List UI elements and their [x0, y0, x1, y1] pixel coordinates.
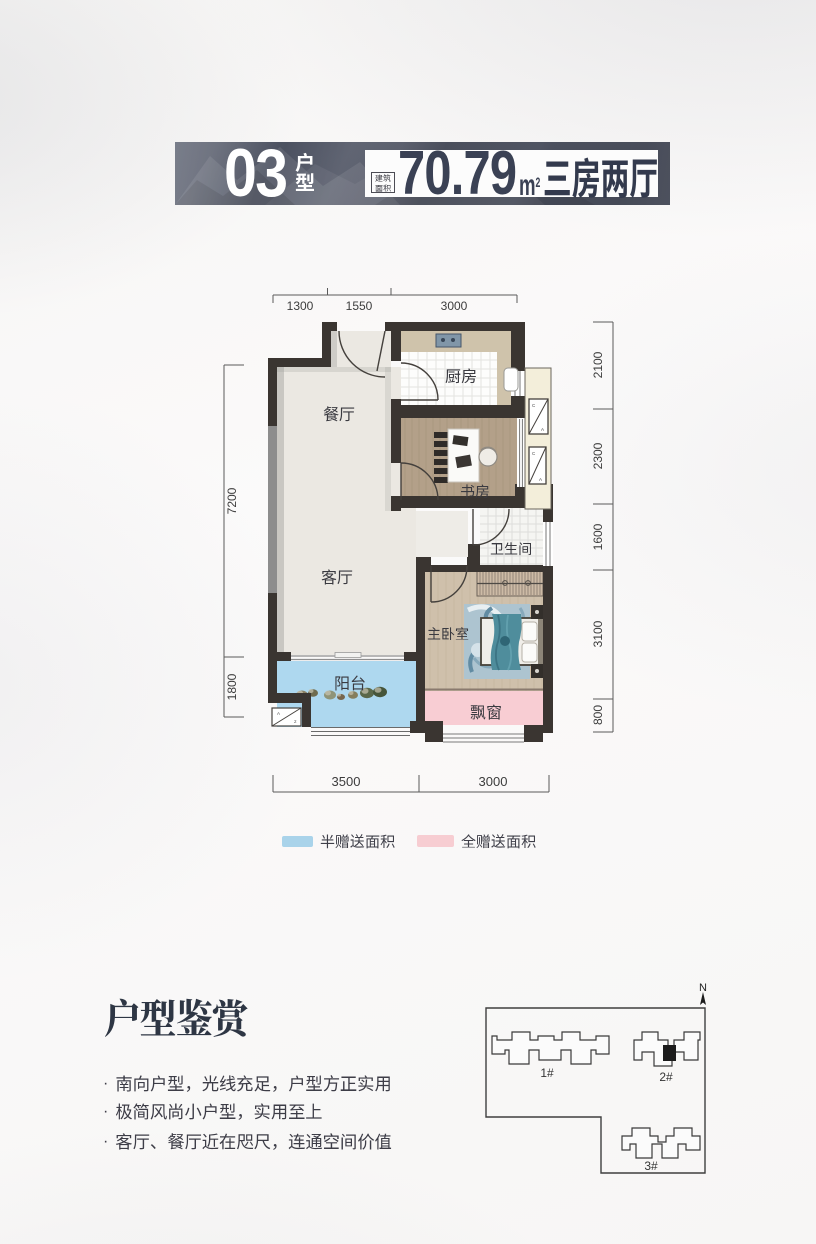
svg-text:3500: 3500 [332, 774, 361, 789]
svg-text:3000: 3000 [441, 299, 468, 313]
svg-text:餐厅: 餐厅 [323, 401, 355, 425]
svg-text:厨房: 厨房 [445, 363, 477, 387]
svg-text:阳台: 阳台 [334, 670, 366, 694]
svg-text:飘窗: 飘窗 [470, 699, 502, 723]
svg-text:主卧室: 主卧室 [427, 624, 469, 644]
svg-text:2300: 2300 [591, 442, 605, 469]
svg-text:1800: 1800 [225, 673, 239, 700]
svg-text:客厅: 客厅 [321, 564, 353, 588]
svg-text:全赠送面积: 全赠送面积 [461, 831, 536, 852]
svg-text:A: A [539, 477, 542, 482]
svg-text:半赠送面积: 半赠送面积 [320, 831, 395, 852]
svg-text:卫生间: 卫生间 [490, 539, 532, 559]
svg-text:800: 800 [591, 705, 605, 725]
svg-text:1#: 1# [540, 1066, 554, 1080]
svg-text:A: A [541, 427, 544, 432]
svg-text:1600: 1600 [591, 523, 605, 550]
svg-text:7200: 7200 [225, 487, 239, 514]
svg-text:2100: 2100 [591, 351, 605, 378]
svg-text:3100: 3100 [591, 620, 605, 647]
svg-text:3000: 3000 [479, 774, 508, 789]
svg-text:1550: 1550 [346, 299, 373, 313]
svg-text:2#: 2# [659, 1070, 673, 1084]
svg-text:1300: 1300 [287, 299, 314, 313]
svg-text:3#: 3# [644, 1159, 658, 1173]
svg-text:A: A [277, 711, 280, 716]
svg-text:书房: 书房 [460, 481, 490, 502]
